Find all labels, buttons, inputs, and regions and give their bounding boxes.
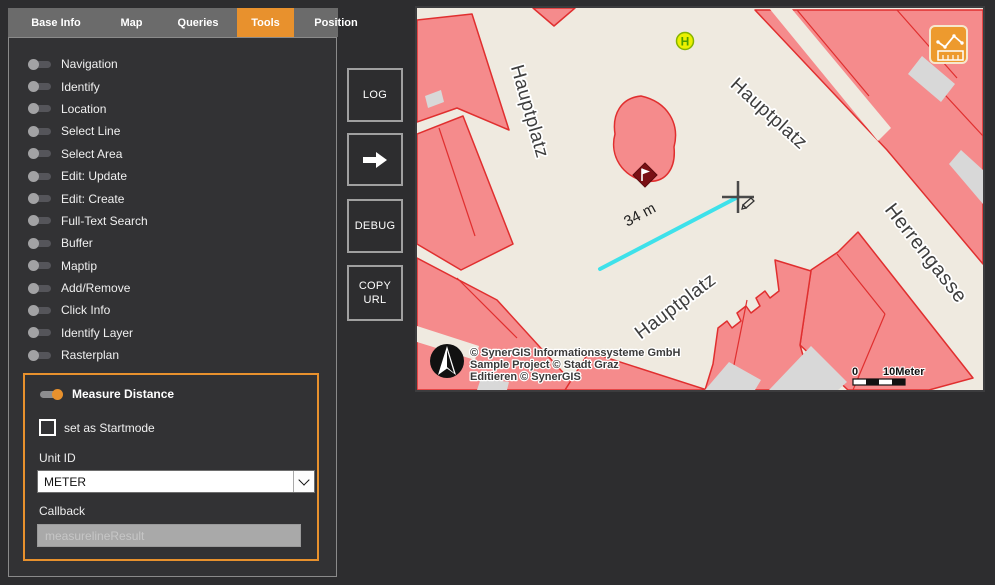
log-button[interactable]: LOG (347, 68, 403, 122)
north-arrow-icon (430, 344, 464, 378)
svg-text:Editieren © SynerGIS: Editieren © SynerGIS (470, 371, 581, 383)
svg-text:10Meter: 10Meter (883, 366, 925, 378)
tab-bar: Base InfoMapQueriesToolsPosition (8, 8, 338, 37)
measure-distance-toggle[interactable] (39, 389, 63, 400)
sidebar-item-select-line[interactable]: Select Line (9, 120, 336, 142)
callback-label: Callback (39, 504, 85, 518)
toggle-off-icon[interactable] (28, 283, 52, 294)
sidebar-item-label: Rasterplan (61, 348, 119, 362)
tab-tools[interactable]: Tools (237, 8, 294, 37)
sidebar-item-select-area[interactable]: Select Area (9, 143, 336, 165)
sidebar-item-click-info[interactable]: Click Info (9, 299, 336, 321)
tab-map[interactable]: Map (104, 8, 159, 37)
chevron-down-icon (298, 474, 309, 485)
callback-input[interactable]: measurelineResult (37, 524, 301, 547)
measure-distance-title: Measure Distance (72, 387, 174, 401)
toggle-off-icon[interactable] (28, 103, 52, 114)
toggle-off-icon[interactable] (28, 215, 52, 226)
sidebar-item-edit-create[interactable]: Edit: Create (9, 187, 336, 209)
sidebar-item-label: Click Info (61, 303, 110, 317)
sidebar-item-label: Add/Remove (61, 281, 130, 295)
toggle-off-icon[interactable] (28, 238, 52, 249)
sidebar-item-label: Full-Text Search (61, 214, 148, 228)
tools-panel: NavigationIdentifyLocationSelect LineSel… (8, 37, 337, 577)
sidebar-item-rasterplan[interactable]: Rasterplan (9, 344, 336, 366)
debug-button[interactable]: DEBUG (347, 199, 403, 253)
sidebar-item-label: Buffer (61, 236, 93, 250)
unit-id-select[interactable]: METER (37, 470, 315, 493)
svg-text:H: H (681, 35, 690, 49)
bus-stop-marker: H (677, 33, 694, 50)
sidebar-item-label: Select Area (61, 147, 122, 161)
sidebar-item-label: Navigation (61, 57, 118, 71)
startmode-label: set as Startmode (64, 421, 155, 435)
sidebar-item-maptip[interactable]: Maptip (9, 255, 336, 277)
sidebar-item-full-text-search[interactable]: Full-Text Search (9, 210, 336, 232)
startmode-checkbox[interactable] (39, 419, 56, 436)
sidebar-item-label: Edit: Update (61, 169, 127, 183)
sidebar-item-buffer[interactable]: Buffer (9, 232, 336, 254)
sidebar-item-label: Select Line (61, 124, 120, 138)
toggle-off-icon[interactable] (28, 305, 52, 316)
toggle-off-icon[interactable] (28, 171, 52, 182)
sidebar-item-label: Location (61, 102, 106, 116)
sidebar-item-identify-layer[interactable]: Identify Layer (9, 322, 336, 344)
measure-distance-panel: Measure Distance set as Startmode Unit I… (23, 373, 319, 561)
sidebar-item-navigation[interactable]: Navigation (9, 53, 336, 75)
tab-base-info[interactable]: Base Info (8, 8, 104, 37)
svg-text:Sample Project © Stadt Graz: Sample Project © Stadt Graz (470, 359, 619, 371)
sidebar-item-label: Identify (61, 80, 100, 94)
right-arrow-icon (361, 149, 389, 171)
sidebar-item-label: Identify Layer (61, 326, 133, 340)
svg-text:0: 0 (852, 366, 858, 378)
toggle-off-icon[interactable] (28, 260, 52, 271)
sidebar-item-identify[interactable]: Identify (9, 75, 336, 97)
sidebar-item-add-remove[interactable]: Add/Remove (9, 277, 336, 299)
dropdown-button[interactable] (293, 471, 314, 492)
sidebar-item-label: Edit: Create (61, 192, 124, 206)
tab-queries[interactable]: Queries (159, 8, 237, 37)
toggle-off-icon[interactable] (28, 126, 52, 137)
chart-tool-button[interactable] (930, 26, 967, 63)
tool-list: NavigationIdentifyLocationSelect LineSel… (9, 53, 336, 366)
toggle-off-icon[interactable] (28, 59, 52, 70)
unit-id-label: Unit ID (39, 451, 76, 465)
toggle-off-icon[interactable] (28, 327, 52, 338)
toggle-off-icon[interactable] (28, 350, 52, 361)
unit-id-value: METER (38, 475, 293, 489)
toggle-off-icon[interactable] (28, 81, 52, 92)
toggle-off-icon[interactable] (28, 193, 52, 204)
svg-text:© SynerGIS Informationssysteme: © SynerGIS Informationssysteme GmbH (470, 347, 680, 359)
tab-position[interactable]: Position (294, 8, 378, 37)
sidebar-item-label: Maptip (61, 259, 97, 273)
map-view[interactable]: Hauptplatz Hauptplatz Hauptplatz Herreng… (415, 6, 985, 392)
sidebar-item-location[interactable]: Location (9, 98, 336, 120)
sidebar-item-edit-update[interactable]: Edit: Update (9, 165, 336, 187)
toggle-off-icon[interactable] (28, 148, 52, 159)
copy-url-button[interactable]: COPY URL (347, 265, 403, 321)
forward-button[interactable] (347, 133, 403, 186)
